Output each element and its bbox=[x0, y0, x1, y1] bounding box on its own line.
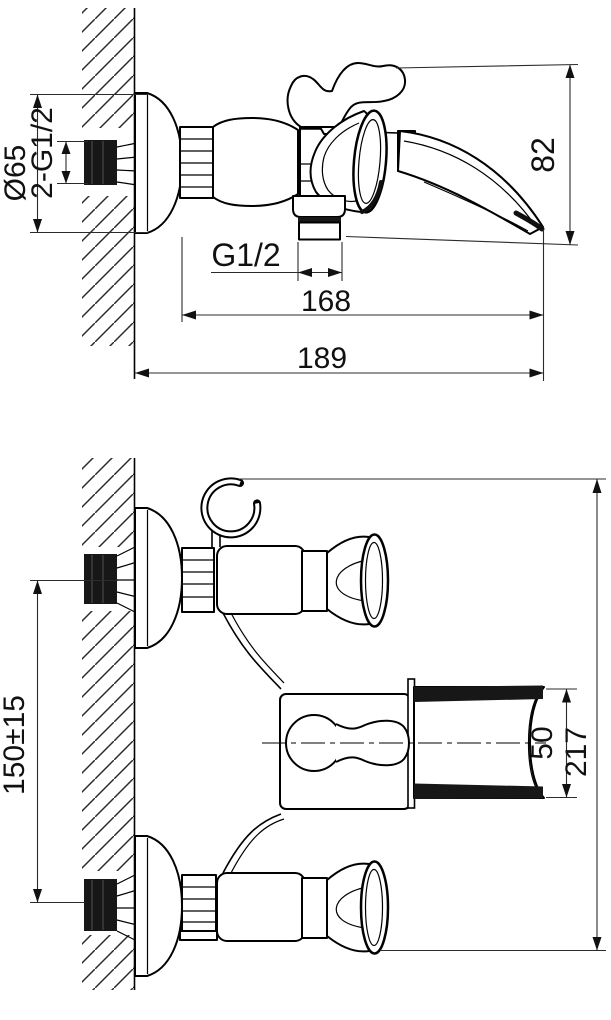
side-view: Ø65 2-G1/2 G1/2 168 189 bbox=[0, 8, 578, 381]
handle-base bbox=[302, 551, 327, 611]
handle-top-plan bbox=[302, 535, 388, 627]
label-body-height: 82 bbox=[525, 137, 561, 173]
waist-top-inner bbox=[231, 613, 284, 683]
label-wall-inlet-threads: 2-G1/2 bbox=[26, 107, 59, 199]
label-overall-depth: 189 bbox=[297, 342, 347, 375]
handle-base bbox=[302, 878, 327, 938]
plan-view: 150±15 50 217 bbox=[0, 458, 606, 990]
valve-body bbox=[213, 118, 298, 206]
waist-top-outer bbox=[223, 613, 281, 689]
outlet-thread-cylinder bbox=[299, 223, 340, 240]
inlet-nipple-bottom bbox=[84, 879, 117, 931]
inlet-nipple bbox=[84, 140, 117, 185]
faucet-dimension-drawing: Ø65 2-G1/2 G1/2 168 189 bbox=[0, 0, 611, 1020]
valve-body-bottom bbox=[217, 873, 305, 941]
waist-bottom-outer bbox=[223, 814, 281, 873]
nut-flange-bottom bbox=[180, 931, 217, 940]
shower-hook-core bbox=[204, 481, 257, 534]
diverter-lever bbox=[288, 63, 405, 127]
shower-outlet bbox=[293, 196, 345, 217]
label-spout-reach: 168 bbox=[301, 285, 351, 318]
escutcheon bbox=[135, 93, 182, 233]
technical-drawing-canvas: Ø65 2-G1/2 G1/2 168 189 bbox=[0, 0, 611, 1020]
label-inlet-centres: 150±15 bbox=[0, 695, 31, 795]
dim-overall-depth: 189 bbox=[135, 342, 544, 378]
escutcheon-bottom bbox=[135, 836, 182, 976]
escutcheon-top bbox=[135, 508, 182, 648]
valve-body-top bbox=[217, 546, 305, 614]
label-spout-end-width: 50 bbox=[526, 726, 559, 759]
handle-bottom-plan bbox=[302, 862, 388, 954]
label-overall-width: 217 bbox=[560, 727, 593, 777]
dim-outlet-thread: G1/2 bbox=[211, 237, 342, 281]
connection-nut-top bbox=[182, 548, 214, 612]
inlet-nipple-top bbox=[84, 554, 117, 604]
label-outlet-thread: G1/2 bbox=[211, 237, 280, 273]
